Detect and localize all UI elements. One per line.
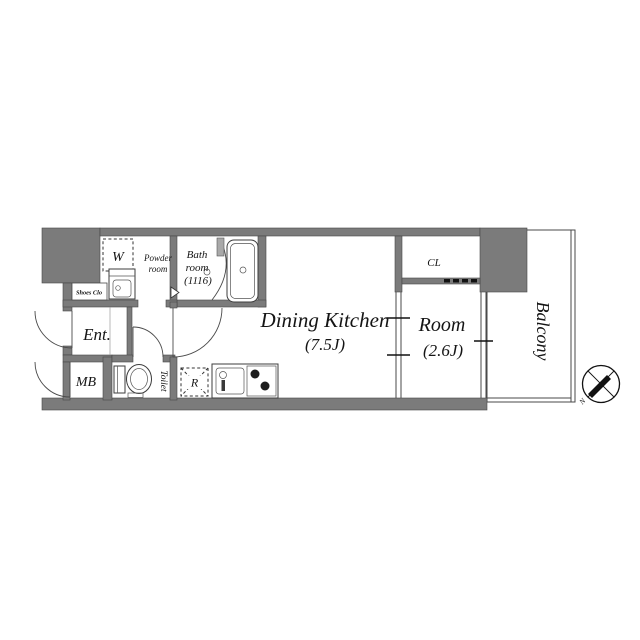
room-size-label: (2.6J)	[423, 341, 463, 360]
kitchen-door-arc	[173, 308, 222, 357]
refrigerator-label: R	[190, 376, 199, 390]
dining-kitchen-size-label: (7.5J)	[305, 335, 345, 354]
closet-label: CL	[427, 257, 440, 269]
entrance-label: Ent.	[82, 325, 111, 344]
toilet-door-arc	[133, 327, 163, 357]
entry-door-arc	[35, 311, 72, 348]
balcony-label: Balcony	[533, 302, 553, 361]
compass-north-label: N	[577, 396, 588, 407]
dining-kitchen-label: Dining Kitchen	[260, 308, 390, 332]
meter-box-label: MB	[75, 375, 97, 390]
bath-label-1: Bath	[187, 249, 208, 261]
toilet-label: Toilet	[158, 370, 168, 392]
window	[474, 292, 493, 398]
washer-label: W	[112, 250, 125, 265]
powder-room-label-2: room	[149, 264, 168, 274]
bath-label-3: (1116)	[184, 275, 212, 287]
floor-plan-page: N Dining Kitchen (7.5J) Room (2.6J) Balc…	[0, 0, 640, 640]
washbasin-icon	[109, 269, 135, 299]
shoes-closet-label: Shoes Clo	[76, 290, 102, 297]
bath-label-2: room	[186, 262, 209, 274]
compass-icon: N	[577, 366, 620, 408]
bathtub-icon	[217, 238, 258, 302]
toilet-icon	[114, 365, 152, 398]
room-label: Room	[418, 314, 466, 336]
floor-plan-svg: N Dining Kitchen (7.5J) Room (2.6J) Balc…	[0, 0, 640, 640]
sliding-door-partition	[387, 292, 410, 398]
powder-room-label-1: Powder	[143, 253, 172, 263]
kitchen-counter	[212, 364, 278, 398]
